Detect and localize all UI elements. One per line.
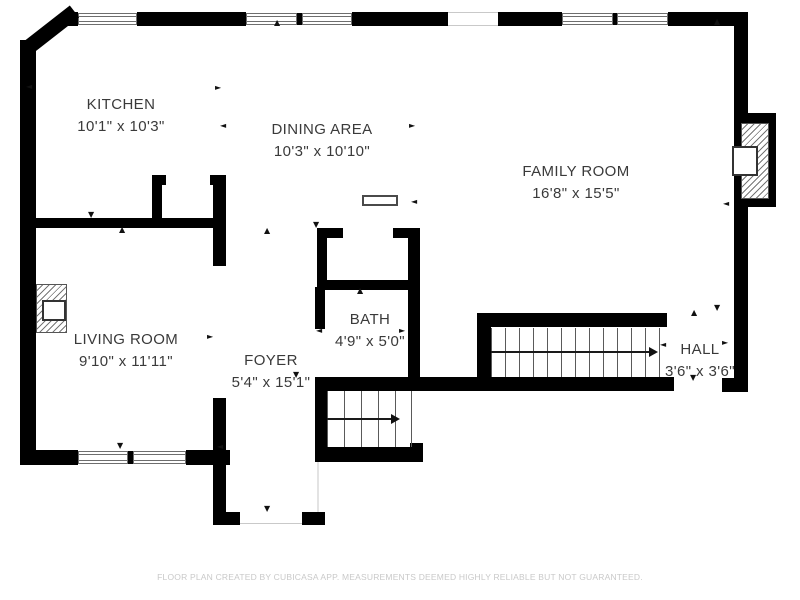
door-marker-up-icon: ▲: [274, 19, 280, 27]
door-marker-up-icon: ▲: [691, 309, 697, 317]
wall: [315, 447, 423, 462]
door-marker-up-icon: ▲: [119, 226, 125, 234]
room-dimensions: 4'9" x 5'0": [335, 331, 405, 353]
door-marker-down-icon: ▼: [117, 442, 123, 450]
door-marker-left-icon: ◄: [723, 200, 729, 208]
stair-direction-line: [327, 418, 393, 420]
door-marker-left-icon: ◄: [26, 83, 32, 91]
wall: [498, 12, 562, 26]
stair-arrow-icon: [391, 414, 400, 424]
stair-direction-line: [491, 351, 651, 353]
window: [246, 13, 297, 25]
door-marker-up-icon: ▲: [264, 227, 270, 235]
room-name: DINING AREA: [271, 119, 372, 141]
door-marker-down-icon: ▼: [313, 221, 319, 229]
wall: [315, 377, 674, 391]
room-label-bath: BATH 4'9" x 5'0": [335, 309, 405, 353]
room-dimensions: 16'8" x 15'5": [522, 183, 629, 205]
room-label-living-room: LIVING ROOM 9'10" x 11'11": [74, 329, 178, 373]
wall: [734, 203, 748, 392]
wall: [477, 313, 491, 391]
door-marker-right-icon: ►: [409, 122, 415, 130]
wall: [152, 175, 166, 185]
room-label-kitchen: KITCHEN 10'1" x 10'3": [77, 94, 164, 138]
room-dimensions: 10'3" x 10'10": [271, 141, 372, 163]
room-dimensions: 5'4" x 15'1": [232, 372, 311, 394]
wall: [477, 313, 667, 327]
wall: [317, 280, 420, 290]
wall: [213, 175, 226, 266]
door-marker-down-icon: ▼: [714, 304, 720, 312]
wall: [302, 512, 325, 525]
front-door-opening: [240, 513, 302, 524]
room-label-dining-area: DINING AREA 10'3" x 10'10": [271, 119, 372, 163]
door-marker-down-icon: ▼: [264, 505, 270, 513]
room-dimensions: 10'1" x 10'3": [77, 116, 164, 138]
wall: [408, 228, 420, 391]
window: [78, 13, 137, 25]
sideboard-furniture: [362, 195, 398, 206]
room-name: LIVING ROOM: [74, 329, 178, 351]
room-name: FOYER: [232, 350, 311, 372]
wall: [20, 40, 36, 465]
wall: [186, 450, 230, 465]
window: [617, 13, 668, 25]
room-name: BATH: [335, 309, 405, 331]
wall: [315, 287, 325, 329]
wall-opening: [448, 12, 498, 26]
room-dimensions: 3'6" x 3'6": [665, 361, 735, 383]
floor-plan-canvas: ▲ ▲ ◄ ► ◄ ▼ ▲ ▲ ▼ ► ◄ ▲ ◄ ► ► ▼ ◄ ▼ ▼ ▲ …: [0, 0, 800, 600]
room-label-hall: HALL 3'6" x 3'6": [665, 339, 735, 383]
footer-disclaimer: FLOOR PLAN CREATED BY CUBICASA APP. MEAS…: [0, 572, 800, 582]
wall: [137, 12, 246, 26]
door-marker-left-icon: ◄: [220, 122, 226, 130]
door-marker-right-icon: ►: [215, 84, 221, 92]
wall: [20, 450, 78, 465]
door-marker-left-icon: ◄: [411, 198, 417, 206]
room-label-foyer: FOYER 5'4" x 15'1": [232, 350, 311, 394]
window: [78, 451, 128, 464]
wall: [213, 512, 240, 525]
under-stair-line: [317, 462, 319, 512]
fireplace-flue: [42, 300, 66, 321]
wall: [734, 12, 748, 120]
window: [133, 451, 186, 464]
window: [302, 13, 352, 25]
door-marker-right-icon: ►: [207, 333, 213, 341]
fireplace-flue: [732, 146, 758, 176]
door-marker-down-icon: ▼: [88, 211, 94, 219]
wall: [352, 12, 448, 26]
door-marker-left-icon: ◄: [217, 443, 223, 451]
room-name: HALL: [665, 339, 735, 361]
room-name: KITCHEN: [77, 94, 164, 116]
room-name: FAMILY ROOM: [522, 161, 629, 183]
room-label-family-room: FAMILY ROOM 16'8" x 15'5": [522, 161, 629, 205]
door-marker-up-icon: ▲: [714, 18, 720, 26]
room-dimensions: 9'10" x 11'11": [74, 351, 178, 373]
door-marker-left-icon: ◄: [316, 327, 322, 335]
door-marker-up-icon: ▲: [357, 287, 363, 295]
window: [562, 13, 613, 25]
stair-arrow-icon: [649, 347, 658, 357]
